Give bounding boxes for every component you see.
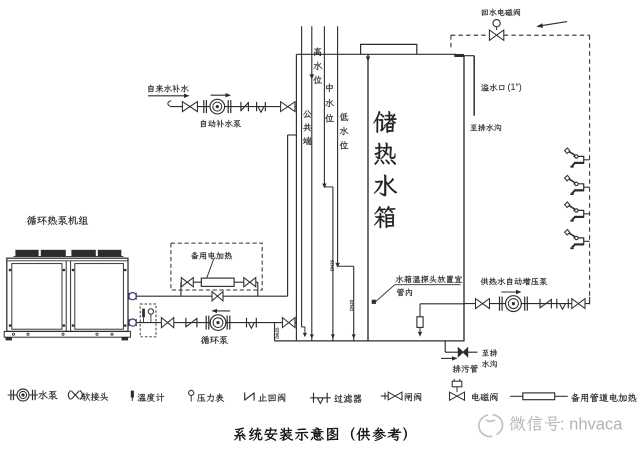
svg-text:(1″): (1″)	[508, 82, 522, 92]
svg-text:: nhvaca: : nhvaca	[560, 416, 623, 434]
